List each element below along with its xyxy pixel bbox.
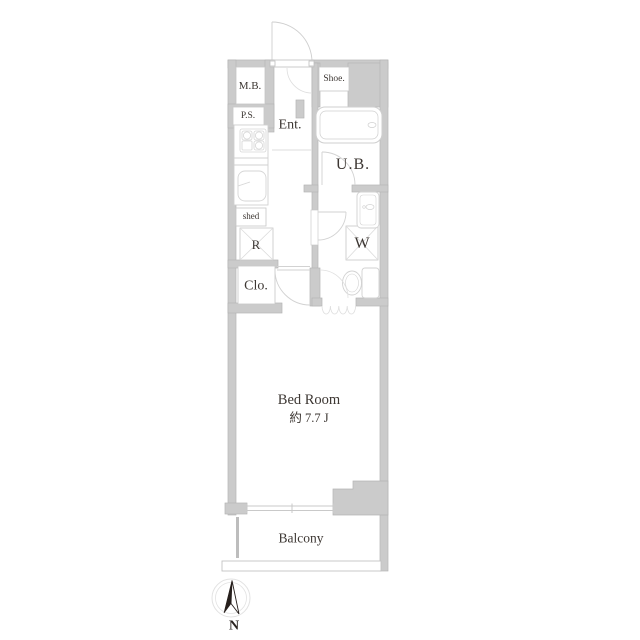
shoe-box-label: Shoe. <box>323 74 344 84</box>
bedroom-window <box>247 504 333 514</box>
entrance-door <box>272 22 312 62</box>
entrance-label: Ent. <box>279 117 302 132</box>
refrigerator-label: R <box>252 238 261 252</box>
pipe-space-label: P.S. <box>241 111 255 121</box>
bathtub-icon <box>316 107 382 143</box>
shed-label: shed <box>243 212 260 222</box>
entrance-door-sill <box>270 60 314 67</box>
compass-north-label: N <box>229 618 239 633</box>
floorplan-page: M.B. P.S. Ent. Shoe. U.B. shed R Clo. W … <box>0 0 640 640</box>
balcony-railing <box>222 561 381 571</box>
balcony-label: Balcony <box>279 532 324 547</box>
bedroom-label: Bed Room <box>278 393 340 409</box>
closet-label: Clo. <box>244 278 268 293</box>
entrance-inner-arc <box>287 68 312 93</box>
bedroom-size-label: 約 7.7 J <box>289 412 328 426</box>
washer-label: W <box>354 235 369 253</box>
vanity-icon <box>357 192 379 228</box>
sink-icon <box>238 171 266 201</box>
meter-box-label: M.B. <box>239 80 262 92</box>
bedroom-door <box>275 267 310 306</box>
unit-bath-label: U.B. <box>336 156 370 174</box>
washroom-door <box>311 210 346 245</box>
compass-icon <box>212 579 250 617</box>
folding-door <box>322 306 356 314</box>
